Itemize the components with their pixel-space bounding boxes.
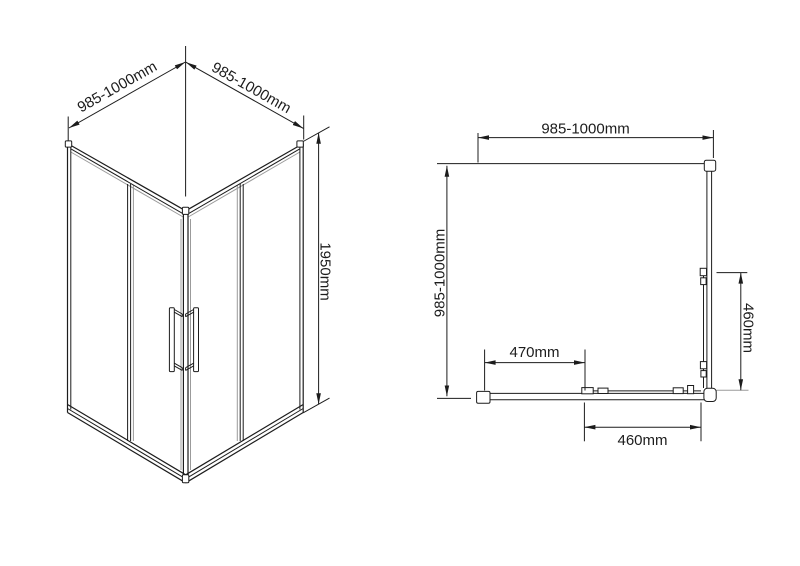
plan-enclosure — [437, 160, 749, 403]
iso-corner-post-top-cap — [182, 207, 188, 214]
iso-dimensions: 985-1000mm 985-1000mm 1950mm — [68, 46, 333, 413]
left-door-handle — [169, 308, 182, 372]
technical-drawing: 985-1000mm 985-1000mm 1950mm — [0, 0, 800, 566]
plan-bottom-left-cap — [477, 391, 490, 403]
plan-bottom-door-rollers — [582, 386, 694, 394]
plan-dim-door-right-label: 460mm — [740, 303, 757, 353]
plan-dim-door-bottom-label: 460mm — [617, 432, 667, 449]
iso-frame — [65, 141, 303, 483]
plan-dim-side-label: 985-1000mm — [432, 229, 449, 317]
plan-view: 985-1000mm 985-1000mm 470mm 460mm 460mm — [432, 121, 757, 450]
iso-dim-height-label: 1950mm — [317, 242, 334, 300]
plan-dim-opening-label: 470mm — [509, 344, 559, 361]
plan-bottom-right-cap — [704, 388, 716, 401]
plan-dim-top-label: 985-1000mm — [541, 121, 629, 138]
iso-dim-right-label: 985-1000mm — [209, 59, 294, 117]
plan-top-right-cap — [704, 160, 715, 171]
iso-right-corner-cap — [297, 141, 303, 147]
iso-dim-left-label: 985-1000mm — [75, 58, 160, 116]
iso-left-corner-cap — [65, 141, 71, 147]
iso-glass-edges — [71, 152, 300, 470]
drawing-canvas: 985-1000mm 985-1000mm 1950mm — [0, 0, 800, 566]
iso-corner-post-bottom-cap — [182, 475, 188, 483]
isometric-view: 985-1000mm 985-1000mm 1950mm — [65, 46, 333, 483]
